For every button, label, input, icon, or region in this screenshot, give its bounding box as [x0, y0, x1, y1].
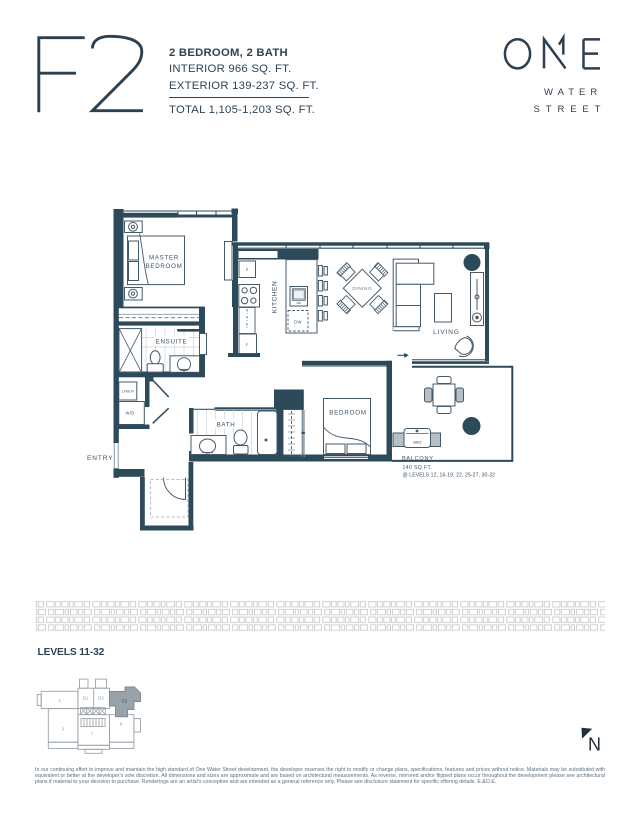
svg-text:BEDROOM: BEDROOM — [146, 263, 183, 270]
svg-text:BALCONY: BALCONY — [402, 456, 434, 462]
svg-text:MASTER: MASTER — [149, 254, 179, 261]
svg-text:F2: F2 — [122, 699, 128, 704]
svg-text:ENTRY: ENTRY — [87, 455, 113, 462]
svg-text:P: P — [246, 268, 249, 272]
svg-text:D2: D2 — [98, 696, 104, 701]
svg-text:KITCHEN: KITCHEN — [272, 281, 279, 313]
svg-text:BEDROOM: BEDROOM — [329, 410, 367, 417]
svg-text:I: I — [91, 731, 92, 736]
svg-text:ENSUITE: ENSUITE — [156, 339, 188, 346]
svg-text:LEVELS 11-32: LEVELS 11-32 — [38, 647, 105, 658]
svg-text:K: K — [120, 722, 123, 727]
svg-text:DINING: DINING — [352, 286, 372, 292]
svg-text:140 SQ.FT.: 140 SQ.FT. — [403, 465, 433, 471]
svg-text:BATH: BATH — [217, 422, 236, 429]
svg-text:LINEN: LINEN — [122, 390, 134, 394]
svg-text:J: J — [62, 727, 64, 732]
svg-text:W/D: W/D — [125, 411, 134, 416]
svg-text:LIVING: LIVING — [433, 329, 460, 336]
svg-text:F: F — [246, 343, 249, 347]
svg-text:@ LEVELS 12, 16-19, 22, 25-27,: @ LEVELS 12, 16-19, 22, 25-27, 30-32 — [403, 472, 496, 478]
svg-text:D1: D1 — [83, 696, 89, 701]
svg-text:N: N — [588, 734, 601, 754]
svg-text:DW: DW — [294, 320, 302, 325]
svg-text:L: L — [59, 698, 62, 703]
svg-text:BBQ: BBQ — [413, 441, 421, 445]
